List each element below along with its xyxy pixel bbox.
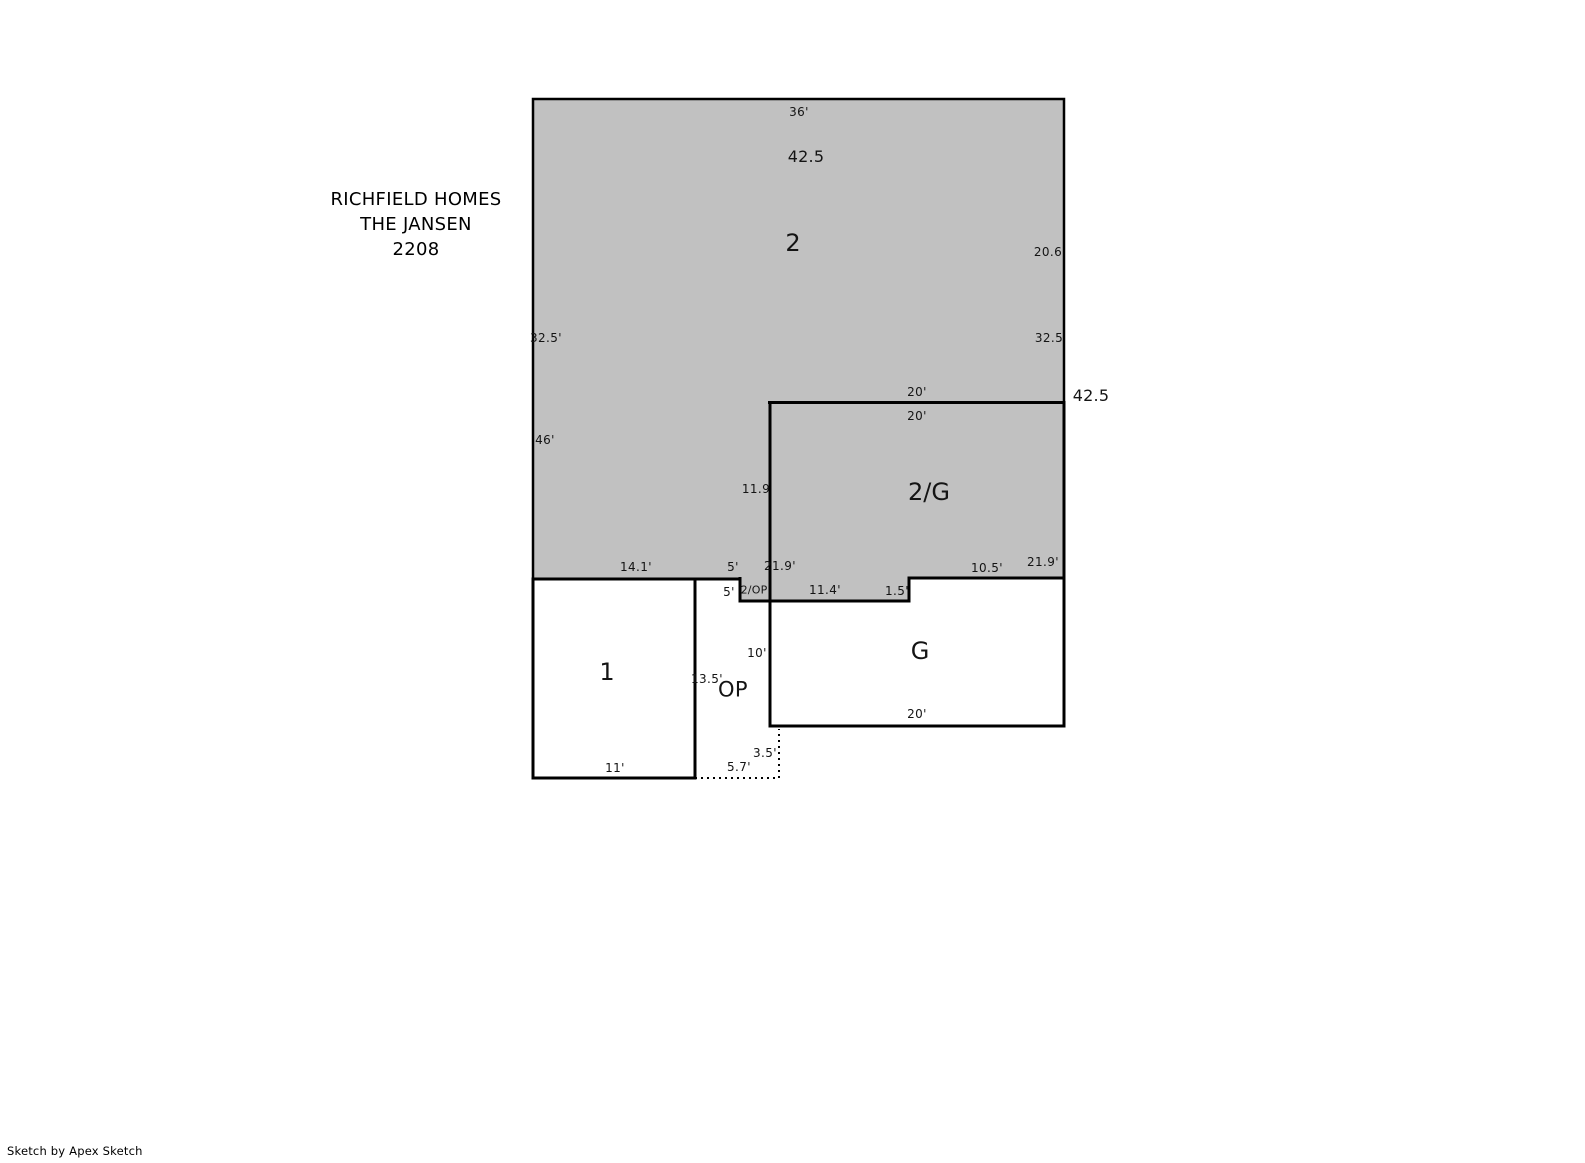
dim-two-g-left-height: 21.9' [764,560,796,572]
dim-overall-right: 42.5 [1073,388,1109,404]
plan-title: RICHFIELD HOMES THE JANSEN 2208 [291,187,541,262]
dim-bottom-left-segment: 14.1' [620,561,652,573]
floorplan-sketch: RICHFIELD HOMES THE JANSEN 2208 2 2/G 1 … [0,0,1585,1163]
dim-first-floor-bottom: 11' [605,762,625,774]
dim-right-wall-upper: 20.6 [1034,246,1062,258]
area-label-two-over-porch: 2/OP [741,585,768,596]
dim-right-wall-mid: 32.5 [1035,332,1063,344]
area-label-two-over-garage: 2/G [908,480,950,504]
area-label-garage: G [911,639,930,663]
dim-porch-bottom-width: 5.7' [727,761,751,773]
floorplan-drawing [0,0,1585,1163]
dim-porch-step-height: 3.5' [753,747,777,759]
dim-five-lower: 5' [723,586,735,598]
plan-title-sqft: 2208 [291,237,541,262]
dim-left-wall-upper: 32.5' [530,332,562,344]
dim-left-wall-lower: 46' [535,434,555,446]
dim-two-g-left-wall: 11.9 [742,483,770,495]
dim-garage-top-right-seg: 10.5' [971,562,1003,574]
dim-garage-top-inside: 20' [907,410,927,422]
dim-first-floor-right: 13.5' [691,673,723,685]
dim-top-width: 36' [789,106,809,118]
second-floor-area [533,99,1064,601]
dim-two-g-right-height: 21.9' [1027,556,1059,568]
area-label-second-floor: 2 [785,231,800,255]
dim-strip-width: 11.4' [809,584,841,596]
dim-garage-top-outside: 20' [907,386,927,398]
dim-overall-width-upper: 42.5 [788,149,824,165]
plan-title-builder: RICHFIELD HOMES [291,187,541,212]
dim-strip-step: 1.5' [885,585,909,597]
apex-sketch-credit: Sketch by Apex Sketch [7,1144,143,1158]
area-label-first-floor: 1 [599,660,614,684]
dim-porch-right-height: 10' [747,647,767,659]
dim-garage-bottom-width: 20' [907,708,927,720]
dim-five-upper: 5' [727,561,739,573]
plan-title-model: THE JANSEN [291,212,541,237]
